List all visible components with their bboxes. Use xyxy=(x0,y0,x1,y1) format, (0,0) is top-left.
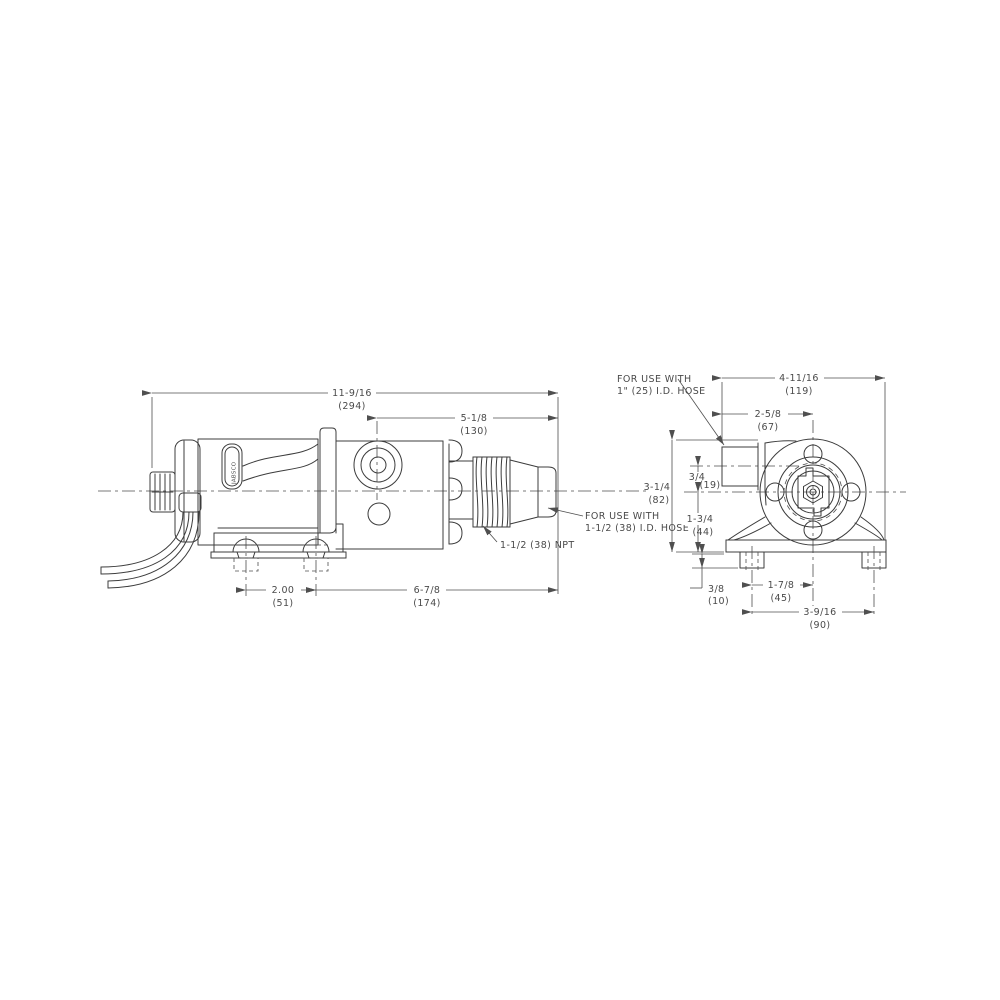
dim-port-center-mm: (67) xyxy=(757,422,778,433)
motor-rear-cap xyxy=(150,472,175,512)
dim-bolt-to-end-mm: (174) xyxy=(413,598,441,609)
dim-foot-spacing-mm: (90) xyxy=(809,620,830,631)
dim-foot-spacing: 3-9/16 (90) xyxy=(752,606,874,631)
motor-body xyxy=(175,439,318,545)
mounting-base xyxy=(726,517,886,616)
side-hose-note-line2: 1-1/2 (38) I.D. HOSE xyxy=(585,523,689,534)
dim-foot-height-frac: 3/8 xyxy=(708,584,725,595)
head-bolt-bottom xyxy=(449,522,462,544)
dim-port-center-frac: 2-5/8 xyxy=(755,409,782,420)
side-view: JABSCO xyxy=(98,387,689,609)
dim-port-offset: 3/4 (19) xyxy=(688,466,721,492)
technical-drawing-canvas: JABSCO xyxy=(0,0,1000,1000)
brand-label: JABSCO xyxy=(232,461,238,485)
dim-bolt-spacing-mm: (51) xyxy=(272,598,293,609)
dim-bolt-to-center-mm: (45) xyxy=(770,593,791,604)
dim-bolt-spacing: 2.00 (51) xyxy=(246,584,316,609)
drain-boss xyxy=(368,503,390,525)
dim-center-height: 1-3/4 (44) xyxy=(682,492,718,552)
dim-port-offset-mm: (19) xyxy=(699,480,720,491)
drawing-page: JABSCO xyxy=(0,0,1000,1000)
end-hose-note: FOR USE WITH 1" (25) I.D. HOSE xyxy=(617,374,724,445)
end-hose-note-line2: 1" (25) I.D. HOSE xyxy=(617,386,706,397)
dim-foot-height: 3/8 (10) xyxy=(690,554,738,607)
dim-center-height-frac: 1-3/4 xyxy=(687,514,714,525)
dim-bolt-to-center: 1-7/8 (45) xyxy=(752,579,813,604)
dim-port-to-end-mm: (130) xyxy=(460,426,488,437)
npt-threads xyxy=(473,457,510,527)
dim-port-to-end: 5-1/8 (130) xyxy=(377,412,558,500)
head-bolt-mid xyxy=(449,478,462,500)
dim-foot-spacing-frac: 3-9/16 xyxy=(803,607,836,618)
hose-adapter xyxy=(510,460,556,524)
motor-head-flange xyxy=(320,428,336,533)
dim-bolt-spacing-frac: 2.00 xyxy=(272,585,295,596)
dim-foot-height-mm: (10) xyxy=(708,596,729,607)
dim-bolt-to-end-frac: 6-7/8 xyxy=(414,585,441,596)
head-bolt-top xyxy=(449,440,462,462)
pump-head xyxy=(336,440,473,549)
dim-overall-length-mm: (294) xyxy=(338,401,366,412)
npt-note: 1-1/2 (38) NPT xyxy=(483,526,575,551)
end-view: 4-11/16 (119) 2-5/8 (67) 3-1/4 (82) 3/4 … xyxy=(617,372,906,631)
side-hose-note: FOR USE WITH 1-1/2 (38) I.D. HOSE xyxy=(548,508,689,534)
dim-port-to-end-frac: 5-1/8 xyxy=(461,413,488,424)
dim-center-height-mm: (44) xyxy=(692,527,713,538)
brand-label-plate: JABSCO xyxy=(222,444,242,489)
npt-note-text: 1-1/2 (38) NPT xyxy=(500,540,575,551)
dim-port-center: 2-5/8 (67) xyxy=(722,408,813,433)
dim-overall-width-mm: (119) xyxy=(785,386,813,397)
dim-bolt-to-end: 6-7/8 (174) xyxy=(316,584,558,609)
end-hose-note-line1: FOR USE WITH xyxy=(617,374,692,385)
dim-overall-width-frac: 4-11/16 xyxy=(779,373,819,384)
dim-bolt-to-center-frac: 1-7/8 xyxy=(768,580,795,591)
dim-overall-length-frac: 11-9/16 xyxy=(332,388,372,399)
dim-overall-height-mm: (82) xyxy=(648,495,669,506)
discharge-port xyxy=(722,441,796,505)
dim-overall-height-frac: 3-1/4 xyxy=(644,482,671,493)
power-wires xyxy=(101,493,201,588)
side-hose-note-line1: FOR USE WITH xyxy=(585,511,660,522)
